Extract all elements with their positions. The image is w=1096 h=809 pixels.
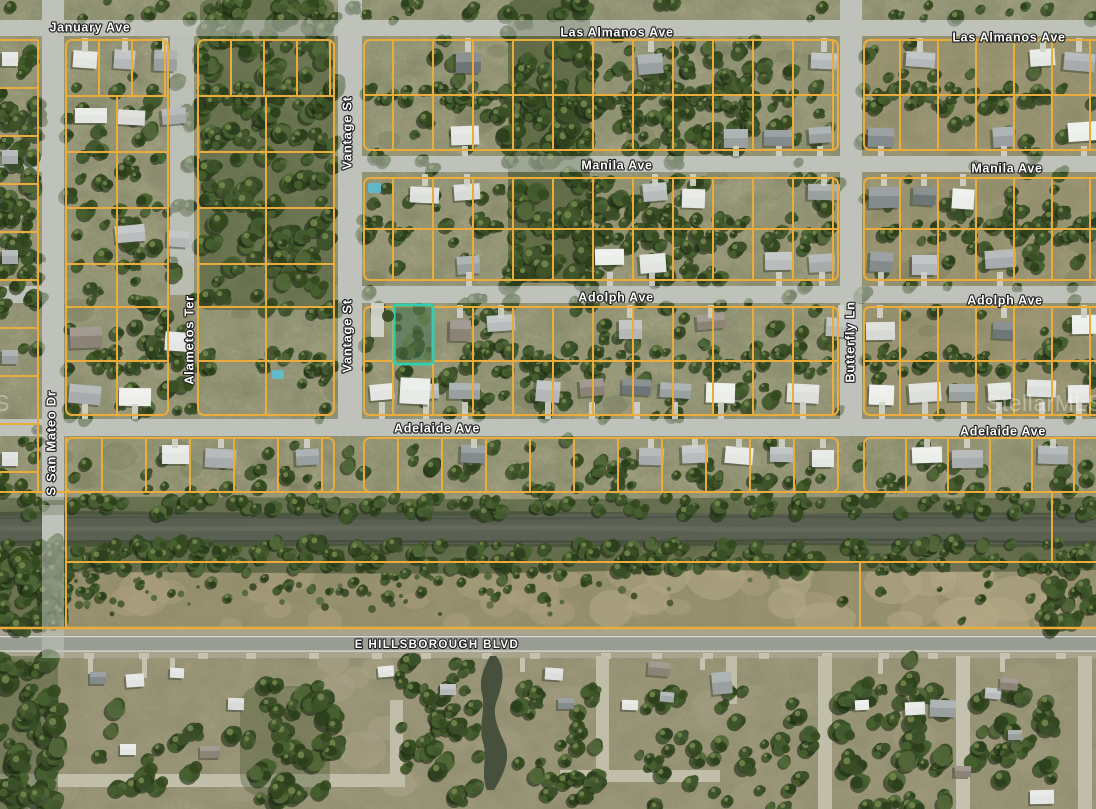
svg-text:January Ave: January Ave: [49, 20, 130, 34]
svg-text:Vantage St: Vantage St: [339, 96, 354, 169]
svg-text:Manila Ave: Manila Ave: [581, 158, 652, 172]
svg-text:Vantage St: Vantage St: [339, 299, 354, 372]
svg-text:Las Almanos Ave: Las Almanos Ave: [560, 25, 673, 39]
svg-text:Adolph Ave: Adolph Ave: [967, 293, 1043, 307]
svg-text:E HILLSBOROUGH BLVD: E HILLSBOROUGH BLVD: [355, 639, 519, 651]
svg-text:Las Almanos Ave: Las Almanos Ave: [952, 30, 1065, 44]
svg-text:Alametos Ter: Alametos Ter: [181, 295, 196, 385]
svg-text:Manila Ave: Manila Ave: [971, 161, 1042, 175]
svg-text:StellarMLS: StellarMLS: [0, 390, 10, 416]
svg-text:Butterfly Ln: Butterfly Ln: [842, 301, 857, 382]
svg-text:S San Mateo Dr: S San Mateo Dr: [43, 390, 58, 495]
svg-text:StellarMLS: StellarMLS: [986, 390, 1096, 416]
svg-text:Adelaide Ave: Adelaide Ave: [394, 421, 480, 435]
svg-text:Adolph Ave: Adolph Ave: [578, 290, 654, 304]
svg-text:Adelaide Ave: Adelaide Ave: [960, 424, 1046, 438]
